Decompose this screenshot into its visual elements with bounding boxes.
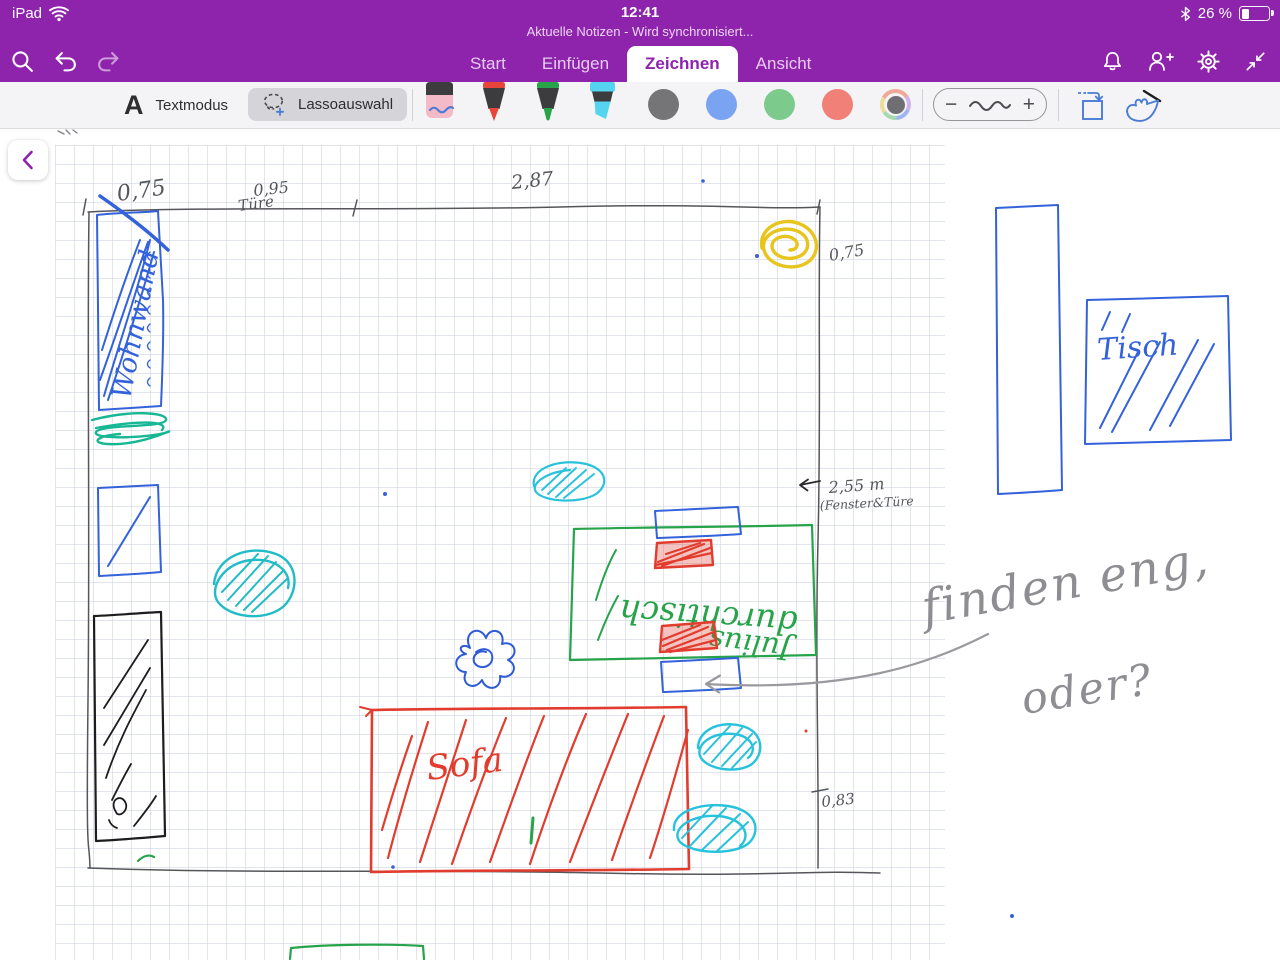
redo-button[interactable] xyxy=(96,49,121,74)
back-navigation-button[interactable] xyxy=(8,140,48,180)
share-notebook-button[interactable] xyxy=(1147,49,1174,74)
tab-zeichnen[interactable]: Zeichnen xyxy=(627,46,738,82)
stroke-width-control: − + xyxy=(933,88,1047,121)
statusbar-right: 26 % xyxy=(1180,5,1270,22)
color-swatch-custom[interactable] xyxy=(880,89,911,120)
green-pen-tool[interactable] xyxy=(528,82,568,122)
battery-icon xyxy=(1239,6,1270,21)
tab-einfuegen[interactable]: Einfügen xyxy=(524,46,627,82)
pen-tools xyxy=(420,82,622,122)
note-canvas-area: 0,75 0,95 Türe 2,87 0,75 2,55 m (Fenster… xyxy=(0,128,1280,960)
battery-percent: 26 % xyxy=(1198,5,1232,22)
toolbar-separator xyxy=(922,89,923,121)
search-button[interactable] xyxy=(10,49,35,74)
onenote-app: iPad 12:41 Aktuelle Notizen - Wird synch… xyxy=(0,0,1280,960)
lasso-select-button[interactable]: Lassoauswahl xyxy=(248,88,407,121)
gear-icon xyxy=(1196,49,1221,74)
ribbon-right-actions xyxy=(1100,40,1268,82)
textmodus-label: Textmodus xyxy=(156,97,229,114)
redo-icon xyxy=(96,49,121,74)
collapse-arrows-icon xyxy=(1243,49,1268,74)
color-swatch-red[interactable] xyxy=(822,89,853,120)
highlighter-tool[interactable] xyxy=(582,82,622,122)
ink-with-touch-button[interactable] xyxy=(1122,88,1164,129)
draw-toolbar: A Textmodus Lassoauswahl xyxy=(0,82,1280,129)
tab-ansicht[interactable]: Ansicht xyxy=(738,46,830,82)
hand-with-pen-icon xyxy=(1122,88,1164,124)
eraser-tool[interactable] xyxy=(420,82,460,122)
color-swatch-blue[interactable] xyxy=(706,89,737,120)
person-add-icon xyxy=(1147,49,1174,74)
pencil-note-line1: finden eng, xyxy=(915,531,1214,636)
lasso-label: Lassoauswahl xyxy=(298,96,393,113)
toolbar-separator xyxy=(412,89,413,121)
textmodus-button[interactable]: A Textmodus xyxy=(124,82,228,128)
collapse-ribbon-button[interactable] xyxy=(1243,49,1268,74)
insert-space-button[interactable] xyxy=(1074,88,1108,127)
statusbar-clock: 12:41 xyxy=(0,4,1280,21)
search-icon xyxy=(10,49,35,74)
red-pen-tool[interactable] xyxy=(474,82,514,122)
tab-start[interactable]: Start xyxy=(452,46,524,82)
app-header: iPad 12:41 Aktuelle Notizen - Wird synch… xyxy=(0,0,1280,82)
pencil-note-line2: oder? xyxy=(1018,655,1157,725)
stroke-wave-icon xyxy=(968,97,1012,113)
color-swatch-green[interactable] xyxy=(764,89,795,120)
note-page[interactable] xyxy=(55,145,945,960)
label-tisch: Tisch xyxy=(1096,327,1179,368)
ribbon-left-actions xyxy=(10,40,121,82)
notifications-button[interactable] xyxy=(1100,49,1125,74)
stroke-increase-button[interactable]: + xyxy=(1023,94,1035,115)
bell-icon xyxy=(1100,49,1125,74)
undo-icon xyxy=(53,49,78,74)
settings-button[interactable] xyxy=(1196,49,1221,74)
undo-button[interactable] xyxy=(53,49,78,74)
text-a-icon: A xyxy=(124,90,144,121)
color-swatch-gray[interactable] xyxy=(648,89,679,120)
notebook-sync-status: Aktuelle Notizen - Wird synchronisiert..… xyxy=(0,24,1280,39)
ribbon-tabs: Start Einfügen Zeichnen Ansicht xyxy=(452,46,829,82)
chevron-left-icon xyxy=(17,148,39,172)
ink-color-swatches xyxy=(648,89,911,120)
toolbar-separator xyxy=(1058,89,1059,121)
insert-space-icon xyxy=(1074,88,1108,122)
stroke-decrease-button[interactable]: − xyxy=(945,94,957,115)
lasso-icon xyxy=(262,92,289,117)
bluetooth-icon xyxy=(1180,6,1191,22)
